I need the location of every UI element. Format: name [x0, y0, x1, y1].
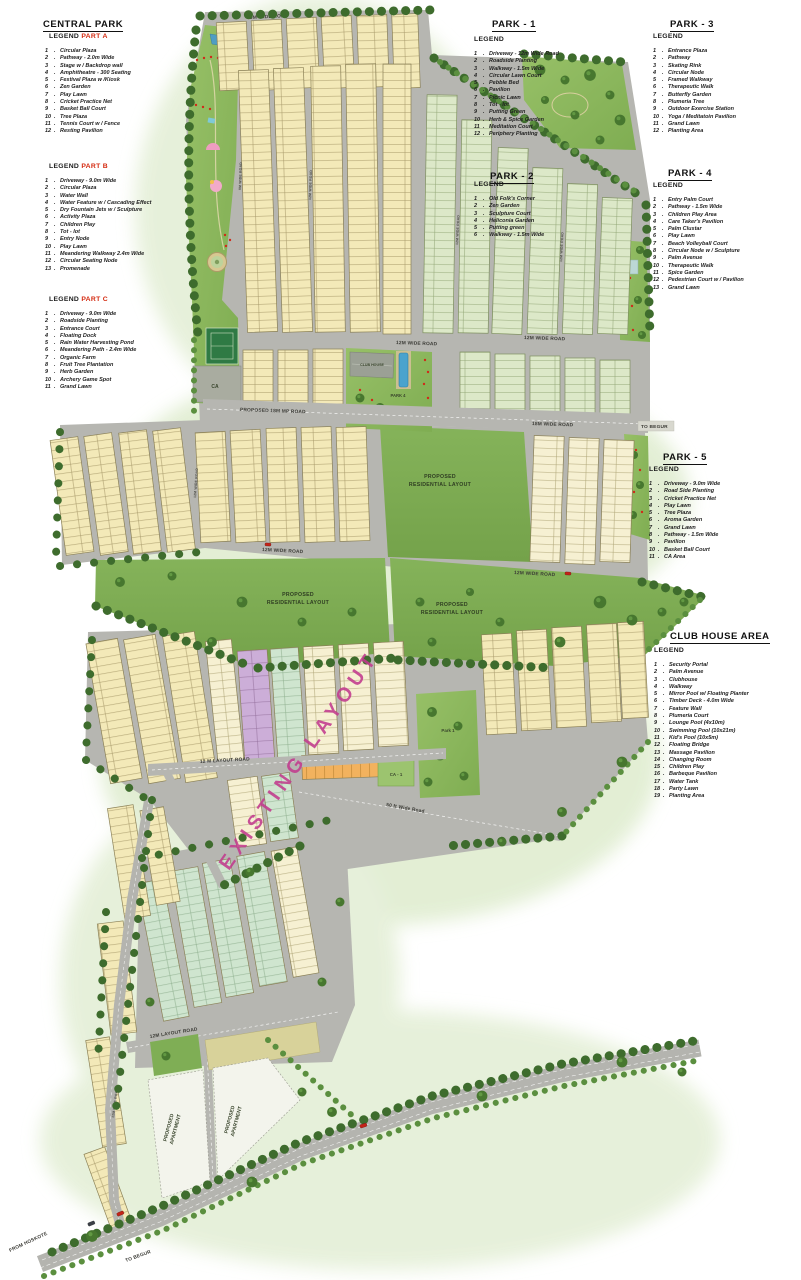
- park-2-legend: LEGEND 1.Old Folk's Corner2.Zen Garden3.…: [474, 181, 544, 240]
- legend-item: 3.Cricket Practice Net: [649, 496, 720, 503]
- svg-text:TO BEGUR: TO BEGUR: [125, 1249, 153, 1264]
- legend-item: 11.Tennis Court w / Fence: [45, 121, 131, 128]
- legend-item: 10.Tree Plaza: [45, 114, 131, 121]
- legend-item: 3.Clubhouse: [654, 677, 749, 684]
- legend-item: 4.Amphitheatre - 300 Seating: [45, 70, 131, 77]
- legend-item: 8.Tot - lot: [45, 229, 152, 236]
- legend-item: 2.Circular Plaza: [45, 185, 152, 192]
- legend-item: 5.Festival Plaza w /Kiosk: [45, 77, 131, 84]
- legend-item: 2.Pathway - 1.5m Wide: [653, 204, 744, 211]
- legend-item: 13.Grand Lawn: [653, 285, 744, 292]
- legend-item: 8.Cricket Practice Net: [45, 99, 131, 106]
- legend-item: 1.Driveway - 9.0m Wide: [649, 481, 720, 488]
- legend-item: 7.Butterfly Garden: [653, 92, 736, 99]
- legend-item: 2.Roadside Planting: [474, 58, 559, 65]
- legend-item: 11.Meandering Walkway 2.4m Wide: [45, 251, 152, 258]
- legend-part-b-items: 1.Driveway - 9.0m Wide2.Circular Plaza3.…: [45, 178, 152, 273]
- legend-item: 2.Pathway - 2.0m Wide: [45, 55, 131, 62]
- legend-item: 16.Barbeque Pavilion: [654, 771, 749, 778]
- legend-item: 9.Putting Green: [474, 109, 559, 116]
- legend-item: 11.Meditation Court: [474, 124, 559, 131]
- legend-item: 12.Pedestrian Court w / Pavilion: [653, 277, 744, 284]
- legend-item: 6.Timber Deck - 4.0m Wide: [654, 698, 749, 705]
- legend-item: 8.Fruit Tree Plantation: [45, 362, 136, 369]
- legend-item: 12.Planting Area: [653, 128, 736, 135]
- svg-text:FROM HOSKOTE: FROM HOSKOTE: [8, 1231, 49, 1254]
- legend-item: 3.Water Wall: [45, 193, 152, 200]
- legend-item: 8.Plumeria Tree: [653, 99, 736, 106]
- circular-plaza: [208, 253, 227, 272]
- svg-text:PROPOSED: PROPOSED: [282, 592, 314, 598]
- legend-item: 19.Planting Area: [654, 793, 749, 800]
- legend-item: 7.Picnic Lawn: [474, 95, 559, 102]
- legend-item: 3.Sculpture Court: [474, 211, 544, 218]
- park-1-legend: LEGEND 1.Driveway - 12m Wide Road2.Roads…: [474, 36, 559, 139]
- legend-item: 11.CA Area: [649, 554, 720, 561]
- ca-area: CA: [193, 366, 241, 402]
- legend-item: 2.Palm Avenue: [654, 669, 749, 676]
- central-park-legend-a: LEGEND PART A 1.Circular Plaza2.Pathway …: [45, 33, 131, 136]
- park-1-title: PARK - 1: [492, 14, 536, 32]
- legend-item: 8.Tot - lot: [474, 102, 559, 109]
- central-park-title: CENTRAL PARK: [43, 14, 123, 32]
- legend-item: 13.Massage Pavilion: [654, 750, 749, 757]
- svg-text:TO BEGUR: TO BEGUR: [641, 424, 668, 430]
- legend-part-c-heading: LEGEND PART C: [49, 296, 136, 303]
- legend-item: 11.Grand Lawn: [45, 384, 136, 391]
- legend-item: 8.Pathway - 1.5m Wide: [649, 532, 720, 539]
- legend-item: 1.Security Portal: [654, 662, 749, 669]
- legend-item: 3.Children Play Area: [653, 212, 744, 219]
- legend-item: 5.Dry Fountain Jets w / Sculpture: [45, 207, 152, 214]
- legend-item: 6.Pavilion: [474, 87, 559, 94]
- legend-item: 4.Water Feature w / Cascading Effect: [45, 200, 152, 207]
- legend-item: 6.Therapeutic Walk: [653, 84, 736, 91]
- legend-item: 7.Organic Farm: [45, 355, 136, 362]
- legend-item: 12.Floating Bridge: [654, 742, 749, 749]
- legend-item: 10.Archery Game Spot: [45, 377, 136, 384]
- legend-item: 10.Swimming Pool (10x21m): [654, 728, 749, 735]
- legend-item: 6.Activity Plaza: [45, 214, 152, 221]
- legend-part-b-heading: LEGEND PART B: [49, 163, 152, 170]
- legend-item: 5.Palm Clustar: [653, 226, 744, 233]
- legend-item: 4.Play Lawn: [649, 503, 720, 510]
- legend-part-a-heading: LEGEND PART A: [49, 33, 131, 40]
- legend-item: 7.Children Play: [45, 222, 152, 229]
- legend-item: 12.Circular Seating Node: [45, 258, 152, 265]
- legend-item: 10.Yoga / Meditatoin Pavilion: [653, 114, 736, 121]
- svg-text:PARK 4: PARK 4: [390, 393, 406, 398]
- legend-item: 5.Mirror Pool w/ Floating Planter: [654, 691, 749, 698]
- legend-item: 3.Skating Rink: [653, 63, 736, 70]
- park-4-legend: LEGEND 1.Entry Palm Court2.Pathway - 1.5…: [653, 182, 744, 292]
- legend-item: 12.Periphery Planting: [474, 131, 559, 138]
- legend-part-c-items: 1.Driveway - 9.0m Wide2.Roadside Plantin…: [45, 311, 136, 391]
- legend-item: 2.Pathway: [653, 55, 736, 62]
- park-3-title: PARK - 3: [670, 14, 714, 32]
- legend-item: 9.Palm Avenue: [653, 255, 744, 262]
- central-park-legend-b: LEGEND PART B 1.Driveway - 9.0m Wide2.Ci…: [45, 163, 152, 273]
- legend-item: 11.Spice Garden: [653, 270, 744, 277]
- legend-item: 5.Pebble Bed: [474, 80, 559, 87]
- swimming-pool: [399, 353, 408, 387]
- legend-item: 3.Walkway - 1.5m Wide: [474, 66, 559, 73]
- legend-item: 3.Stage w / Backdrop wall: [45, 63, 131, 70]
- central-park-legend-c: LEGEND PART C 1.Driveway - 9.0m Wide2.Ro…: [45, 296, 136, 391]
- legend-item: 5.Putting green: [474, 225, 544, 232]
- legend-item: 9.Herb Garden: [45, 369, 136, 376]
- legend-item: 17.Water Tank: [654, 779, 749, 786]
- legend-item: 7.Play Lawn: [45, 92, 131, 99]
- legend-item: 6.Aroma Garden: [649, 517, 720, 524]
- park-5-legend: LEGEND 1.Driveway - 9.0m Wide2.Road Side…: [649, 466, 720, 561]
- svg-text:RESIDENTIAL LAYOUT: RESIDENTIAL LAYOUT: [421, 610, 484, 616]
- legend-item: 9.Entry Node: [45, 236, 152, 243]
- legend-item: 1.Driveway - 12m Wide Road: [474, 51, 559, 58]
- legend-item: 4.Circular Node: [653, 70, 736, 77]
- legend-item: 4.Walkway: [654, 684, 749, 691]
- svg-text:CA: CA: [211, 384, 219, 390]
- legend-item: 6.Zen Garden: [45, 84, 131, 91]
- legend-item: 2.Road Side Planting: [649, 488, 720, 495]
- svg-text:PROPOSED: PROPOSED: [436, 602, 468, 608]
- club-house-area-legend: LEGEND 1.Security Portal2.Palm Avenue3.C…: [654, 647, 749, 801]
- legend-item: 6.Walkway - 1.5m Wide: [474, 232, 544, 239]
- legend-item: 14.Changing Room: [654, 757, 749, 764]
- legend-part-a-items: 1.Circular Plaza2.Pathway - 2.0m Wide3.S…: [45, 48, 131, 136]
- park-3-legend: LEGEND 1.Entrance Plaza2.Pathway3.Skatin…: [653, 33, 736, 136]
- legend-item: 10.Play Lawn: [45, 244, 152, 251]
- tennis-court: [206, 328, 238, 364]
- club-house-area-title: CLUB HOUSE AREA: [670, 626, 770, 644]
- legend-item: 7.Feature Wall: [654, 706, 749, 713]
- legend-item: 4.Heliconia Garden: [474, 218, 544, 225]
- legend-item: 4.Care Taker's Pavilion: [653, 219, 744, 226]
- legend-item: 10.Basket Ball Court: [649, 547, 720, 554]
- legend-item: 13.Promenade: [45, 266, 152, 273]
- park-4-title: PARK - 4: [668, 163, 712, 181]
- legend-item: 15.Children Play: [654, 764, 749, 771]
- legend-item: 10.Therapeutic Walk: [653, 263, 744, 270]
- legend-item: 2.Zen Garden: [474, 203, 544, 210]
- master-plan-page: CA CLUB HOUSE PARK 4: [0, 0, 801, 1280]
- legend-item: 9.Basket Ball Court: [45, 106, 131, 113]
- svg-text:CLUB HOUSE: CLUB HOUSE: [360, 363, 384, 367]
- legend-item: 1.Entry Palm Court: [653, 197, 744, 204]
- legend-item: 2.Roadside Planting: [45, 318, 136, 325]
- legend-item: 5.Framed Walkway: [653, 77, 736, 84]
- svg-text:Park 1: Park 1: [441, 728, 455, 733]
- legend-item: 1.Driveway - 9.0m Wide: [45, 311, 136, 318]
- legend-item: 18.Party Lawn: [654, 786, 749, 793]
- legend-item: 1.Entrance Plaza: [653, 48, 736, 55]
- legend-item: 6.Meandering Path - 2.4m Wide: [45, 347, 136, 354]
- legend-item: 3.Entrance Court: [45, 326, 136, 333]
- legend-item: 1.Driveway - 9.0m Wide: [45, 178, 152, 185]
- svg-text:CA - 1: CA - 1: [390, 772, 403, 777]
- legend-item: 10.Herb & Spice Garden: [474, 117, 559, 124]
- legend-item: 1.Old Folk's Corner: [474, 196, 544, 203]
- legend-item: 9.Lounge Pool (4x10m): [654, 720, 749, 727]
- legend-item: 1.Circular Plaza: [45, 48, 131, 55]
- svg-text:RESIDENTIAL LAYOUT: RESIDENTIAL LAYOUT: [409, 482, 472, 488]
- legend-item: 9.Pavilion: [649, 539, 720, 546]
- legend-item: 11.Grand Lawn: [653, 121, 736, 128]
- legend-item: 12.Resting Pavilion: [45, 128, 131, 135]
- legend-item: 5.Rain Water Harvesting Pond: [45, 340, 136, 347]
- legend-item: 9.Outdoor Exercise Station: [653, 106, 736, 113]
- park-5-title: PARK - 5: [663, 447, 707, 465]
- legend-item: 11.Kid's Pool (10x5m): [654, 735, 749, 742]
- legend-item: 6.Play Lawn: [653, 233, 744, 240]
- svg-text:PROPOSED: PROPOSED: [424, 474, 456, 480]
- legend-item: 8.Plumeria Court: [654, 713, 749, 720]
- legend-item: 7.Grand Lawn: [649, 525, 720, 532]
- svg-text:RESIDENTIAL LAYOUT: RESIDENTIAL LAYOUT: [267, 600, 330, 606]
- legend-item: 7.Beach Volleyball Court: [653, 241, 744, 248]
- legend-item: 5.Tree Plaza: [649, 510, 720, 517]
- legend-item: 4.Floating Dock: [45, 333, 136, 340]
- legend-item: 8.Circular Node w / Sculpture: [653, 248, 744, 255]
- legend-item: 4.Circular Lawn Court: [474, 73, 559, 80]
